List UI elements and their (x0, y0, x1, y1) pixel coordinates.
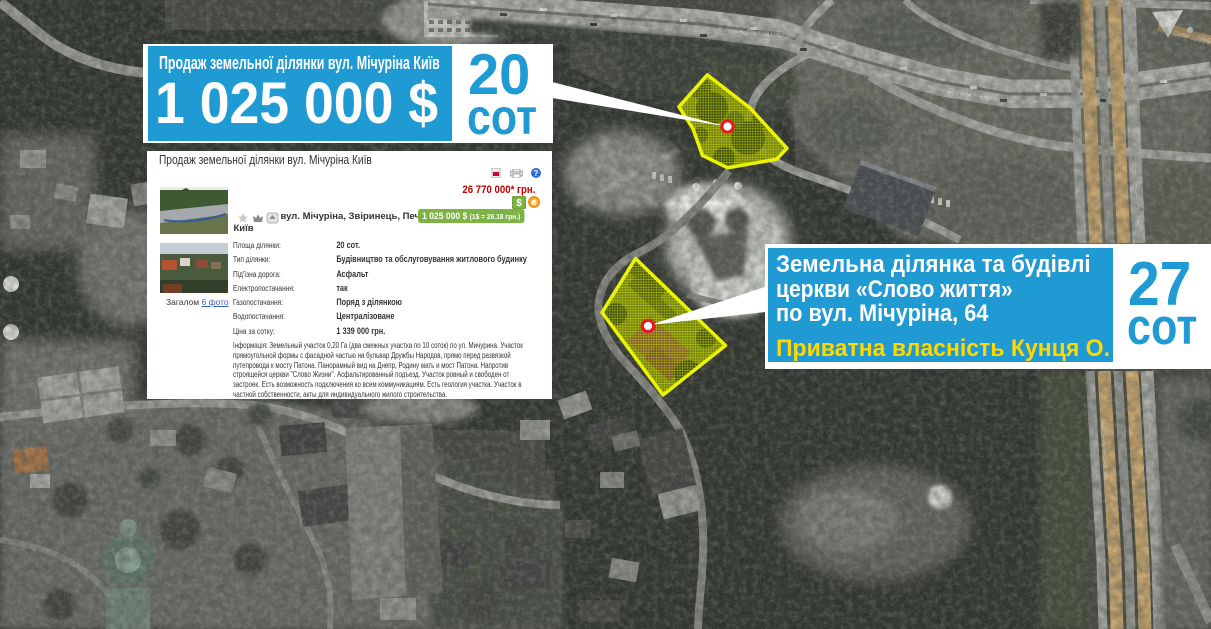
svg-text:?: ? (534, 169, 539, 178)
svg-text:$: $ (516, 198, 522, 209)
svg-text:₴: ₴ (531, 200, 536, 207)
